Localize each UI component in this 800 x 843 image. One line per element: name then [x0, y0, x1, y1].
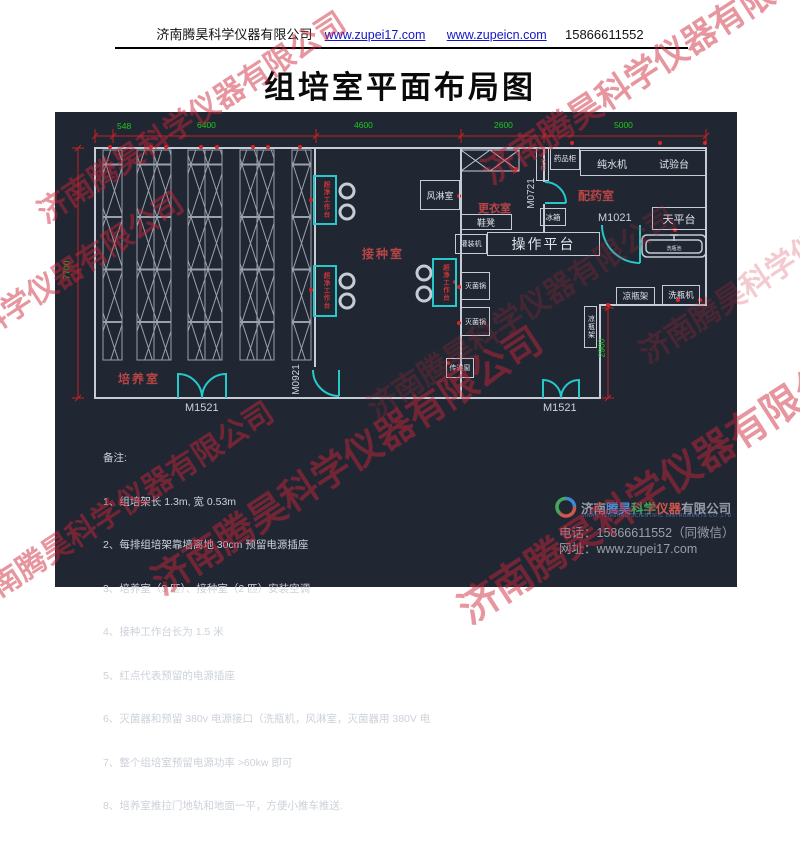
air-shower-room: 风淋室 — [420, 180, 460, 210]
door-label-m1021: M1021 — [598, 212, 632, 224]
fridge: 冰箱 — [540, 208, 566, 226]
sterilizer-1: 灭菌锅 — [461, 272, 490, 300]
clean-bench-label: 超净工作台 — [320, 272, 330, 310]
room-label-changing: 更衣室 — [478, 200, 511, 216]
header-phone: 15866611552 — [565, 27, 644, 42]
dim-6400: 6400 — [197, 120, 216, 130]
cooling-rack-horizontal: 凉瓶架 — [616, 287, 655, 305]
header-divider — [115, 47, 688, 49]
footer-website[interactable]: 网址：www.zupei17.com — [559, 538, 697, 557]
wardrobe-label: 衣柜 — [538, 158, 547, 172]
page-header: 济南腾昊科学仪器有限公司 www.zupei17.com www.zupeicn… — [0, 24, 800, 43]
walls — [95, 148, 706, 398]
note-item: 3、培养室（3 匹）、接种室（2 匹）安装空调 — [103, 582, 430, 597]
note-item: 6、灭菌器和预留 380v 电源接口（洗瓶机，风淋室，灭菌器用 380V 电 — [103, 712, 430, 727]
clean-bench-label: 超净工作台 — [440, 264, 450, 302]
room-label-culture: 培养室 — [118, 370, 160, 387]
door-label-m0921: M0921 — [291, 364, 302, 395]
footer-tagline: JINAN TENGHAO SCIENTIFIC INSTRUMENTS CO.… — [582, 513, 732, 519]
door-label-m0721: M0721 — [526, 178, 537, 209]
cooling-rack-label: 凉瓶架 — [586, 315, 596, 339]
balance-table: 天平台 — [652, 207, 706, 230]
door-label-m1521-left: M1521 — [185, 402, 219, 414]
filling-machine: 灌装机 — [455, 234, 487, 254]
water-machine-test-bench: 纯水机 试验台 — [580, 150, 706, 176]
room-label-inoculation: 接种室 — [362, 245, 404, 262]
clean-bench-1: 超净工作台 — [313, 175, 337, 225]
note-item: 5、红点代表预留的电源插座 — [103, 669, 430, 684]
bottle-washer: 洗瓶机 — [662, 285, 700, 305]
dim-2600: 2600 — [494, 120, 513, 130]
dim-548: 548 — [117, 121, 131, 131]
header-company: 济南腾昊科学仪器有限公司 — [156, 27, 312, 42]
note-item: 7、整个组培室预留电源功率 >60kw 即可 — [103, 756, 430, 771]
dim-7700: 7700 — [61, 261, 71, 280]
locker-strip — [461, 150, 519, 171]
wardrobe-cabinet: 衣柜 — [536, 148, 549, 181]
dim-4600: 4600 — [354, 120, 373, 130]
water-machine-label: 纯水机 — [597, 156, 627, 171]
notes-block: 备注: 1、组培架长 1.3m, 宽 0.53m 2、每排组培架靠墙离地 30c… — [103, 422, 430, 843]
pass-through-window: 传递窗 — [446, 358, 474, 378]
header-link-zupeicn[interactable]: www.zupeicn.com — [447, 28, 547, 42]
room-label-dispensing: 配药室 — [578, 187, 614, 204]
bottle-sink-label: 洗瓶池 — [660, 245, 688, 252]
dim-5000: 5000 — [614, 120, 633, 130]
note-item: 2、每排组培架靠墙离地 30cm 预留电源插座 — [103, 538, 430, 553]
sterilizer-2: 灭菌锅 — [461, 307, 490, 336]
floorplan-panel: 超净工作台 超净工作台 超净工作台 风淋室 衣柜 药品柜 纯水机 试验台 天平台… — [55, 112, 737, 587]
notes-title: 备注: — [103, 451, 430, 466]
brand-logo-icon — [555, 496, 577, 518]
page: { "header": { "company": "济南腾昊科学仪器有限公司",… — [0, 0, 800, 600]
clean-bench-2: 超净工作台 — [313, 265, 337, 317]
cooling-rack-vertical: 凉瓶架 — [584, 306, 597, 348]
note-item: 1、组培架长 1.3m, 宽 0.53m — [103, 495, 430, 510]
test-bench-label: 试验台 — [659, 156, 689, 171]
shoe-bench: 鞋凳 — [460, 214, 512, 230]
medicine-cabinet: 药品柜 — [550, 147, 580, 170]
culture-racks — [103, 150, 311, 360]
dim-2900: 2900 — [596, 339, 606, 358]
header-link-zupei17[interactable]: www.zupei17.com — [325, 28, 426, 42]
clean-bench-3: 超净工作台 — [432, 258, 457, 307]
door-label-m1521-right: M1521 — [543, 402, 577, 414]
note-item: 8、培养室推拉门地轨和地面一平，方便小推车推送. — [103, 799, 430, 814]
operation-platform: 操作平台 — [487, 232, 600, 256]
page-title: 组培室平面布局图 — [0, 62, 800, 107]
clean-bench-label: 超净工作台 — [320, 181, 330, 219]
note-item: 4、接种工作台长为 1.5 米 — [103, 625, 430, 640]
